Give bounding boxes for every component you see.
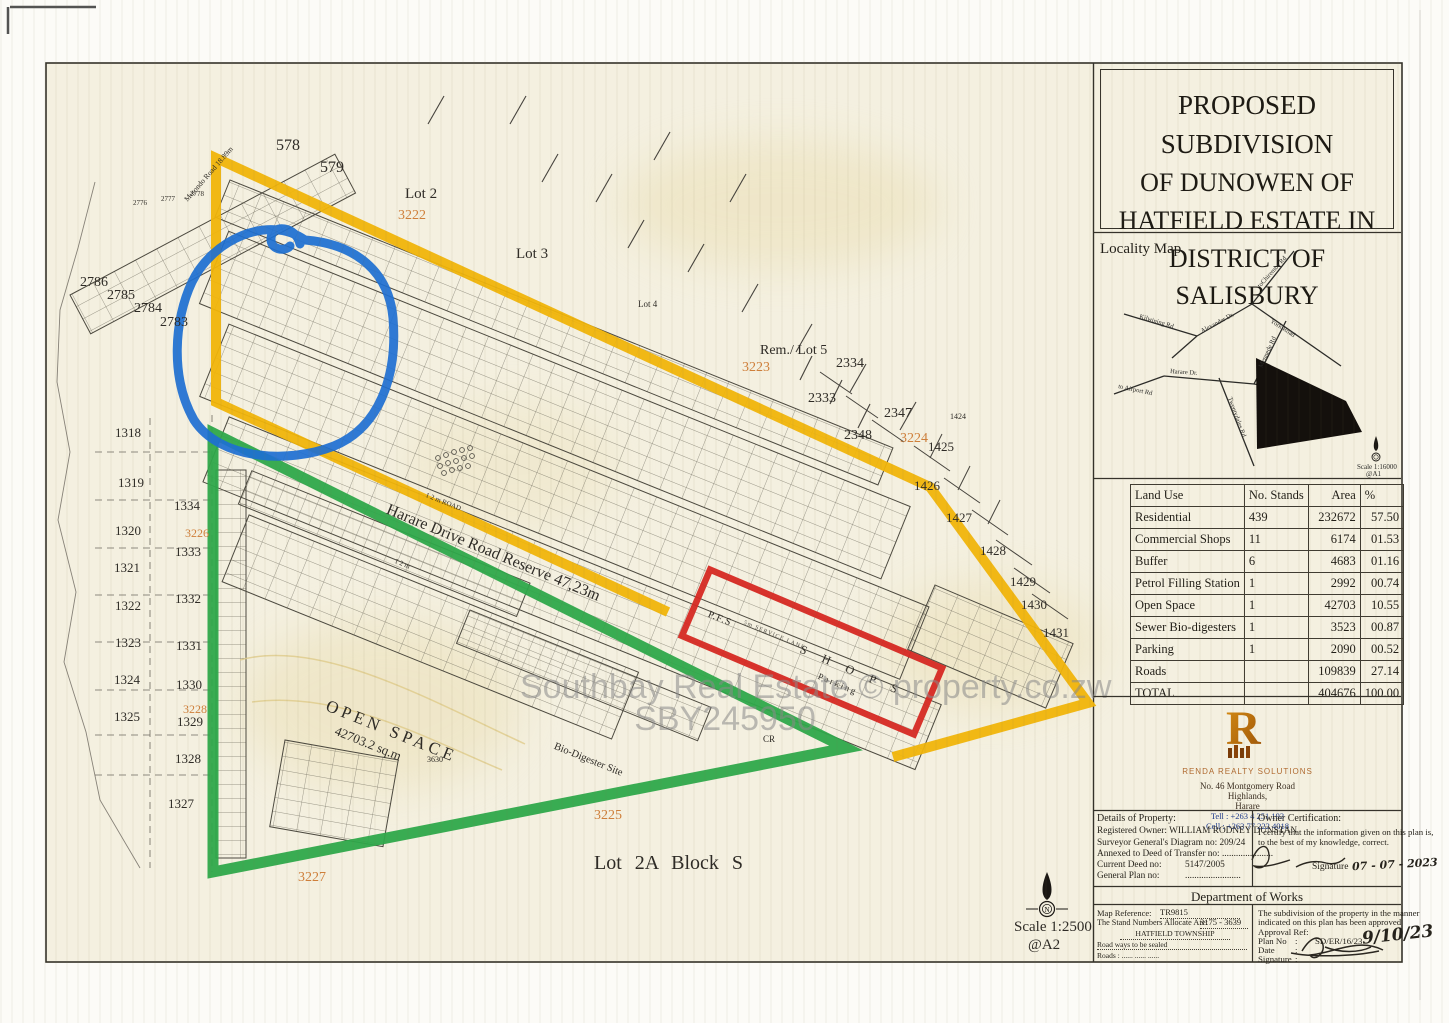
- label-stand-3630: 3630: [427, 756, 443, 764]
- label-plan-sheet: @A2: [1028, 938, 1060, 953]
- works-sig-colon: :: [1295, 954, 1297, 965]
- label-stand-1324: 1324: [114, 673, 140, 686]
- road-label-twentydales: Twentydales Rd: [1226, 396, 1247, 439]
- works-plan-no-value: SD/ER/16/23: [1315, 936, 1362, 947]
- title-block: PROPOSED SUBDIVISION OF DUNOWEN OF HATFI…: [1100, 69, 1394, 229]
- cell-name: Open Space: [1131, 595, 1245, 617]
- road-label-kilwinning: Kilwining Rd: [1138, 313, 1175, 330]
- cell-stands: 1: [1244, 573, 1308, 595]
- cell-area: 109839: [1308, 661, 1360, 683]
- details-gp-value: ........................: [1185, 871, 1241, 883]
- label-plan-scale: Scale 1:2500: [1014, 920, 1092, 935]
- label-stand-1333: 1333: [175, 545, 201, 558]
- locality-site-polygon: [1256, 358, 1362, 449]
- label-3228: 3228: [183, 703, 207, 715]
- label-stand-1321: 1321: [114, 561, 140, 574]
- watermark-line1: Southbay Real Estate © property.co.zw: [520, 670, 1080, 704]
- label-3227: 3227: [298, 871, 326, 885]
- label-stand-1332: 1332: [175, 592, 201, 605]
- owner-cert-heading: Owner Certification:: [1258, 813, 1341, 826]
- table-row: Buffer 6 4683 01.16: [1131, 551, 1404, 573]
- label-stand-1429: 1429: [1010, 575, 1036, 588]
- logo-address-3: Harare: [1160, 801, 1335, 811]
- road-label-harare-dr: Harare Dr.: [1170, 368, 1198, 377]
- cell-pct: 00.74: [1360, 573, 1403, 595]
- label-stand-1325: 1325: [114, 710, 140, 723]
- logo-address-1: No. 46 Montgomery Road: [1160, 781, 1335, 791]
- details-deed-value: 5147/2005: [1185, 860, 1225, 872]
- works-heading: Department of Works: [1093, 889, 1401, 905]
- cell-stands: 11: [1244, 529, 1308, 551]
- cell-area: 232672: [1308, 507, 1360, 529]
- label-stand-1427: 1427: [946, 511, 972, 524]
- label-stand-1425: 1425: [928, 440, 954, 453]
- details-deed-label: Current Deed no:: [1097, 860, 1162, 872]
- label-3223: 3223: [742, 361, 770, 375]
- label-stand-1320: 1320: [115, 524, 141, 537]
- label-stand-2785: 2785: [107, 289, 135, 303]
- road-label-airport: to Airport Rd: [1118, 383, 1154, 397]
- works-township: HATFIELD TOWNSHIP: [1120, 929, 1230, 940]
- cell-stands: 1: [1244, 639, 1308, 661]
- details-gp-label: General Plan no:: [1097, 871, 1159, 883]
- cell-area: 2992: [1308, 573, 1360, 595]
- label-stand-1430: 1430: [1021, 598, 1047, 611]
- cell-pct: 27.14: [1360, 661, 1403, 683]
- cell-pct: 01.53: [1360, 529, 1403, 551]
- cell-name: Parking: [1131, 639, 1245, 661]
- details-heading: Details of Property:: [1097, 813, 1176, 826]
- label-stand-1331: 1331: [176, 639, 202, 652]
- label-3226: 3226: [185, 527, 209, 539]
- label-stand-2333: 2333: [808, 392, 836, 406]
- surveyor-logo-block: R RENDA REALTY SOLUTIONS No. 46 Montgome…: [1160, 700, 1335, 831]
- cell-area: 4683: [1308, 551, 1360, 573]
- label-stand-2784: 2784: [134, 302, 162, 316]
- cell-stands: 1: [1244, 617, 1308, 639]
- cell-pct: 00.52: [1360, 639, 1403, 661]
- cell-name: Petrol Filling Station: [1131, 573, 1245, 595]
- cell-area: 2090: [1308, 639, 1360, 661]
- table-row: Open Space 1 42703 10.55: [1131, 595, 1404, 617]
- title-line-3: HATFIELD ESTATE IN: [1101, 202, 1393, 240]
- road-label-chiremba: toChiremba Rd: [1256, 254, 1288, 289]
- scan-edge-mark: [8, 7, 96, 34]
- title-line-1: PROPOSED SUBDIVISION: [1101, 86, 1393, 164]
- col-no-stands: No. Stands: [1244, 485, 1308, 507]
- locality-map: Kilwining Rd Alexander Dr. toChiremba Rd…: [1094, 236, 1400, 478]
- locality-sheet: @A1: [1366, 470, 1382, 478]
- label-stand-1328: 1328: [175, 752, 201, 765]
- details-sg-diagram: Surveyor General's Diagram no: 209/24: [1097, 838, 1245, 850]
- table-row: Roads 109839 27.14: [1131, 661, 1404, 683]
- label-stand-2776: 2776: [133, 200, 147, 207]
- label-stand-1428: 1428: [980, 544, 1006, 557]
- label-stand-1318: 1318: [115, 426, 141, 439]
- label-stand-1424: 1424: [950, 413, 966, 421]
- table-row: Residential 439 232672 57.50: [1131, 507, 1404, 529]
- cell-pct: 57.50: [1360, 507, 1403, 529]
- label-stand-1322: 1322: [115, 599, 141, 612]
- works-note-roads: Roads : ...... ...... ......: [1097, 951, 1159, 960]
- cell-stands: [1244, 661, 1308, 683]
- logo-address-2: Highlands,: [1160, 791, 1335, 801]
- north-letter: N: [1044, 906, 1049, 914]
- label-lot2: Lot 2: [405, 187, 437, 202]
- cell-pct: 100.00: [1360, 683, 1403, 705]
- owner-cert-body-2: to the best of my knowledge, correct.: [1258, 837, 1389, 848]
- label-stand-1426: 1426: [914, 479, 940, 492]
- works-note-sealed: Road ways to be sealed: [1097, 940, 1247, 950]
- col-pct: %: [1360, 485, 1403, 507]
- label-stand-2348: 2348: [844, 429, 872, 443]
- cell-stands: 1: [1244, 595, 1308, 617]
- label-3222: 3222: [398, 209, 426, 223]
- watermark-line2: SBY245950: [560, 702, 890, 736]
- logo-company-name: RENDA REALTY SOLUTIONS: [1160, 767, 1335, 776]
- cell-pct: 10.55: [1360, 595, 1403, 617]
- label-stand-1334: 1334: [174, 499, 200, 512]
- cell-area: 3523: [1308, 617, 1360, 639]
- label-stand-578: 578: [276, 138, 300, 154]
- label-stand-1327: 1327: [168, 797, 194, 810]
- cell-stands: 6: [1244, 551, 1308, 573]
- cell-pct: 00.87: [1360, 617, 1403, 639]
- scanned-subdivision-plan: N 578 579 Lot 2 3222 Lot 3 Lot 4 Rem./ L…: [0, 0, 1449, 1023]
- label-3225: 3225: [594, 809, 622, 823]
- land-use-header-row: Land Use No. Stands Area %: [1131, 485, 1404, 507]
- label-lot2a-block-s: Lot 2A Block S: [594, 853, 743, 873]
- cell-name: Buffer: [1131, 551, 1245, 573]
- col-land-use: Land Use: [1131, 485, 1245, 507]
- label-stand-579: 579: [320, 160, 344, 176]
- label-stand-2777: 2777: [161, 196, 175, 203]
- col-area: Area: [1308, 485, 1360, 507]
- label-stand-1319: 1319: [118, 476, 144, 489]
- table-row: Parking 1 2090 00.52: [1131, 639, 1404, 661]
- cell-pct: 01.16: [1360, 551, 1403, 573]
- label-stand-1323: 1323: [115, 636, 141, 649]
- table-row: Commercial Shops 11 6174 01.53: [1131, 529, 1404, 551]
- land-use-table: Land Use No. Stands Area % Residential 4…: [1130, 484, 1404, 705]
- logo-monogram: R: [1226, 702, 1262, 755]
- road-label-york: York Road: [1269, 318, 1297, 340]
- label-stand-2786: 2786: [80, 276, 108, 290]
- label-stand-1329: 1329: [177, 715, 203, 728]
- label-lot4: Lot 4: [638, 300, 657, 309]
- cell-name: Residential: [1131, 507, 1245, 529]
- owner-cert-sig-label: Signature: [1312, 862, 1348, 874]
- works-sig-label: Signature: [1258, 954, 1292, 965]
- table-row: Petrol Filling Station 1 2992 00.74: [1131, 573, 1404, 595]
- cell-name: Sewer Bio-digesters: [1131, 617, 1245, 639]
- label-rem-lot5: Rem./ Lot 5: [760, 344, 827, 358]
- cell-area: 6174: [1308, 529, 1360, 551]
- cell-stands: 439: [1244, 507, 1308, 529]
- details-annexed: Annexed to Deed of Transfer no: ........…: [1097, 849, 1273, 861]
- north-arrow: N: [1026, 872, 1068, 917]
- label-stand-2783: 2783: [160, 316, 188, 330]
- works-stands-label: The Stand Numbers Allocate Are:: [1097, 918, 1208, 928]
- cell-name: Commercial Shops: [1131, 529, 1245, 551]
- label-stand-1330: 1330: [176, 678, 202, 691]
- title-line-2: OF DUNOWEN OF: [1101, 164, 1393, 202]
- cell-name: Roads: [1131, 661, 1245, 683]
- label-stand-1431: 1431: [1043, 626, 1069, 639]
- locality-north-arrow: [1372, 436, 1380, 461]
- realty-logo-icon: R: [1218, 700, 1278, 762]
- works-stands-value: 3175 - 3639: [1200, 917, 1248, 929]
- table-row: Sewer Bio-digesters 1 3523 00.87: [1131, 617, 1404, 639]
- label-stand-2334: 2334: [836, 357, 864, 371]
- road-label-alexander: Alexander Dr.: [1200, 311, 1236, 335]
- label-stand-2347: 2347: [884, 407, 912, 421]
- label-lot3: Lot 3: [516, 247, 548, 262]
- label-3224: 3224: [900, 432, 928, 446]
- cell-area: 42703: [1308, 595, 1360, 617]
